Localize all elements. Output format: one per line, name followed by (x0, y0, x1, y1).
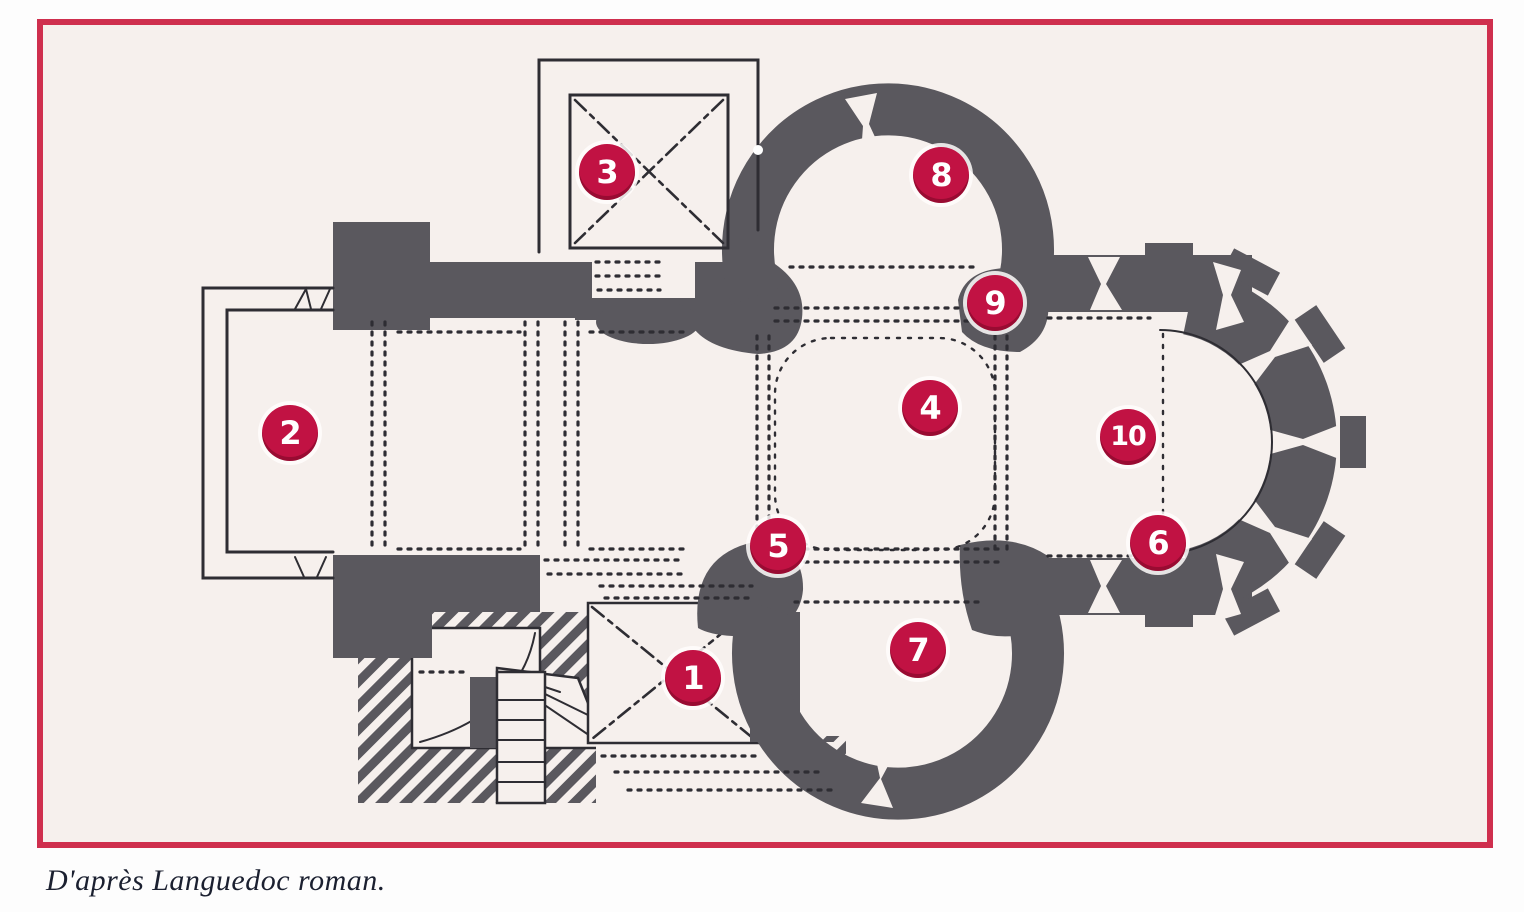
figure: 12345678910 D'après Languedoc roman. (0, 0, 1524, 912)
stair-newel (470, 677, 497, 748)
stair-flight (497, 672, 545, 803)
nave-north-wall (430, 262, 592, 318)
nave-north-pier (596, 300, 700, 344)
choir-south-buttress (1145, 613, 1193, 627)
nave-south-wall (430, 555, 540, 612)
tower-wall-dot (753, 145, 763, 155)
nave-south-west-block (333, 555, 432, 658)
choir-north-buttress (1145, 243, 1193, 257)
nave-north-west-block (333, 222, 430, 330)
caption: D'après Languedoc roman. (46, 864, 386, 898)
apse-buttress-e (1340, 416, 1366, 468)
church-plan (0, 0, 1524, 912)
